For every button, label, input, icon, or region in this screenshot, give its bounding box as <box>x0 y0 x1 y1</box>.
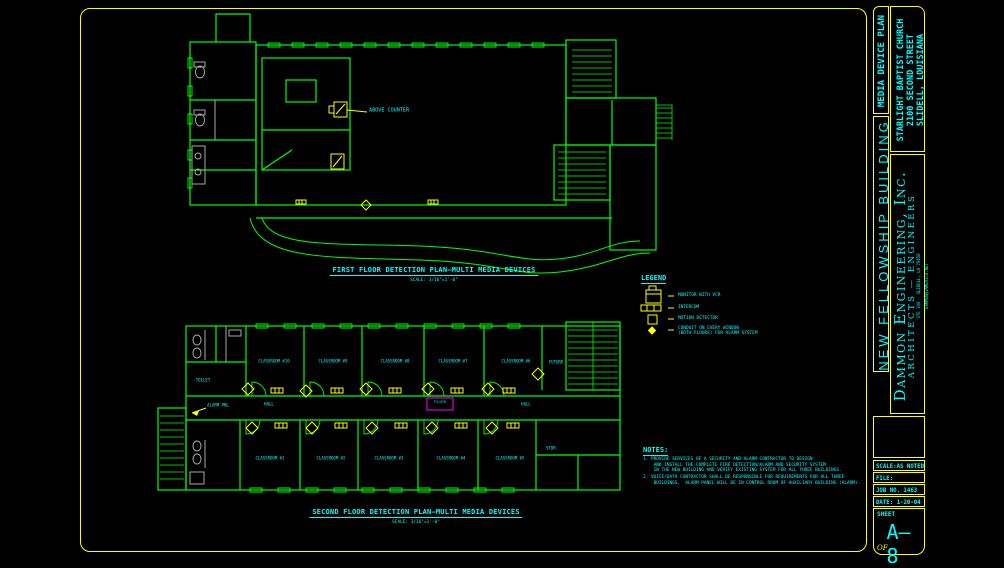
toilet-label: TOILET <box>196 378 210 383</box>
firm-address-2: DAMMON@IAMERICA.NET <box>925 223 929 350</box>
tv-vcr-label: TV/VCR <box>434 400 446 404</box>
titleblock-plan-type-box: MEDIA DEVICE PLAN <box>873 6 889 114</box>
monitor-vcr-symbol <box>331 154 344 169</box>
intercom-symbol <box>428 200 438 204</box>
file-value: FILE: <box>876 475 893 482</box>
titleblock-empty-box <box>873 416 925 458</box>
first-floor-fixtures <box>192 62 215 184</box>
room-label: CLASSROOM #1 <box>256 456 285 461</box>
legend-conduit-label-2: (BOTH FLOORS) FOR ALARM SYSTEM <box>678 330 757 335</box>
titleblock-date-box: DATE: 1-20-04 <box>873 496 925 507</box>
intercom-symbol <box>455 423 467 428</box>
storage-label: STOR. <box>546 446 558 451</box>
intercom-symbol <box>335 423 347 428</box>
sheet-label: SHEET <box>877 511 895 518</box>
legend-monitor-label: MONITOR WITH VCR <box>678 292 720 297</box>
titleblock-project-box: STARLIGHT BAPTIST CHURCH 2100 SECOND STR… <box>890 6 925 152</box>
legend-conduit-icon <box>649 327 656 334</box>
motion-detector-symbol <box>426 422 438 434</box>
note-line: BUILDINGS. ALARM PANEL WILL BE IN CONTRO… <box>643 480 860 485</box>
intercom-symbol <box>395 423 407 428</box>
first-floor-title: FIRST FLOOR DETECTION PLAN—MULTI MEDIA D… <box>329 266 538 276</box>
room-label: CLASSROOM #8 <box>381 359 410 364</box>
note-line: AND INSTALL THE COMPLETE FIRE DETECTION/… <box>643 462 826 467</box>
titleblock-file-box: FILE: <box>873 472 925 483</box>
intercom-symbol <box>275 423 287 428</box>
room-label: CLASSROOM #10 <box>258 359 289 364</box>
date-value: DATE: 1-20-04 <box>876 499 921 506</box>
second-floor-devices <box>192 368 544 434</box>
first-floor-walkway <box>250 218 650 273</box>
intercom-symbol <box>331 388 343 393</box>
titleblock-firm-box: Dammon Engineering, Inc. ARCHITECTS — EN… <box>890 154 925 414</box>
first-floor-devices <box>296 102 438 210</box>
first-floor-windows <box>188 43 544 188</box>
first-floor-walls <box>190 14 656 250</box>
legend-monitor-vcr-icon <box>646 286 661 303</box>
first-floor-scale: SCALE: 3/16"=1'-0" <box>410 277 458 282</box>
alarm-panel-arrow <box>192 408 206 416</box>
room-label: CLASSROOM #3 <box>375 456 404 461</box>
hall-label: HALL <box>264 402 274 407</box>
legend-motion-detector-icon <box>648 315 657 324</box>
room-label-future: FUTURE <box>549 360 563 365</box>
project-street: 2100 SECOND STREET <box>906 9 916 151</box>
note-line: IN THE NEW BUILDING AND VERIFY EXISTING … <box>643 467 842 472</box>
firm-address-1: STE 100 · SLIDELL, LA 70458 <box>917 223 921 350</box>
project-name: STARLIGHT BAPTIST CHURCH <box>896 9 906 151</box>
second-floor-title: SECOND FLOOR DETECTION PLAN—MULTI MEDIA … <box>309 508 522 518</box>
firm-name: Dammon Engineering, Inc. <box>893 159 908 413</box>
first-floor-stairs <box>558 50 672 194</box>
monitor-vcr-symbol <box>329 102 347 117</box>
cad-viewport: { "colors": { "background": "#000000", "… <box>0 0 1004 562</box>
motion-detector-symbol <box>366 422 378 434</box>
note-line: 1. PROVIDE SERVICES OF A SECURITY AND AL… <box>643 456 813 461</box>
intercom-symbol <box>503 388 515 393</box>
job-number: JOB NO. 1463 <box>876 487 917 494</box>
note-line: 2. VOICE/DATA CONTRACTOR SHALL BE RESPON… <box>643 474 844 479</box>
scale-value: SCALE:AS NOTED <box>876 463 924 470</box>
motion-detector-symbol <box>486 422 498 434</box>
intercom-symbol <box>296 200 306 204</box>
room-label: CLASSROOM #6 <box>502 359 531 364</box>
intercom-symbol <box>507 423 519 428</box>
room-label: CLASSROOM #7 <box>439 359 468 364</box>
titleblock-scale-box: SCALE:AS NOTED <box>873 460 925 471</box>
room-label: CLASSROOM #9 <box>319 359 348 364</box>
second-floor-scale: SCALE: 3/16"=1'-0" <box>392 519 440 524</box>
room-label: CLASSROOM #5 <box>496 456 525 461</box>
alarm-panel-label: ALARM PNL <box>207 403 229 408</box>
plan-linework <box>0 0 1004 562</box>
legend-motion-label: MOTION DETECTOR <box>678 315 718 320</box>
notes-title: NOTES: <box>643 446 668 456</box>
intercom-symbol <box>271 388 283 393</box>
legend-intercom-label: INTERCOM <box>678 304 699 309</box>
sheet-of-label: OF <box>877 544 888 552</box>
legend-title: LEGEND <box>641 274 666 284</box>
titleblock-sheet-box: SHEET A—8 OF <box>873 508 925 555</box>
second-floor-windows <box>250 324 520 492</box>
intercom-symbol <box>451 388 463 393</box>
sheet-number: A—8 <box>887 520 912 568</box>
project-city: SLIDELL, LOUISIANA <box>916 9 926 151</box>
intercom-symbol <box>389 388 401 393</box>
above-counter-label: ABOVE COUNTER <box>369 107 409 113</box>
room-label: CLASSROOM #2 <box>317 456 346 461</box>
building-name-label: NEW FELLOWSHIP BUILDING <box>876 119 891 371</box>
second-floor-doors <box>246 382 504 434</box>
plan-type-label: MEDIA DEVICE PLAN <box>877 9 887 113</box>
room-label: CLASSROOM #4 <box>437 456 466 461</box>
titleblock-job-box: JOB NO. 1463 <box>873 484 925 495</box>
hall-label: HALL <box>521 402 531 407</box>
titleblock-building-box: NEW FELLOWSHIP BUILDING <box>873 116 889 372</box>
legend-icons <box>641 286 674 334</box>
legend-intercom-icon <box>641 305 661 311</box>
